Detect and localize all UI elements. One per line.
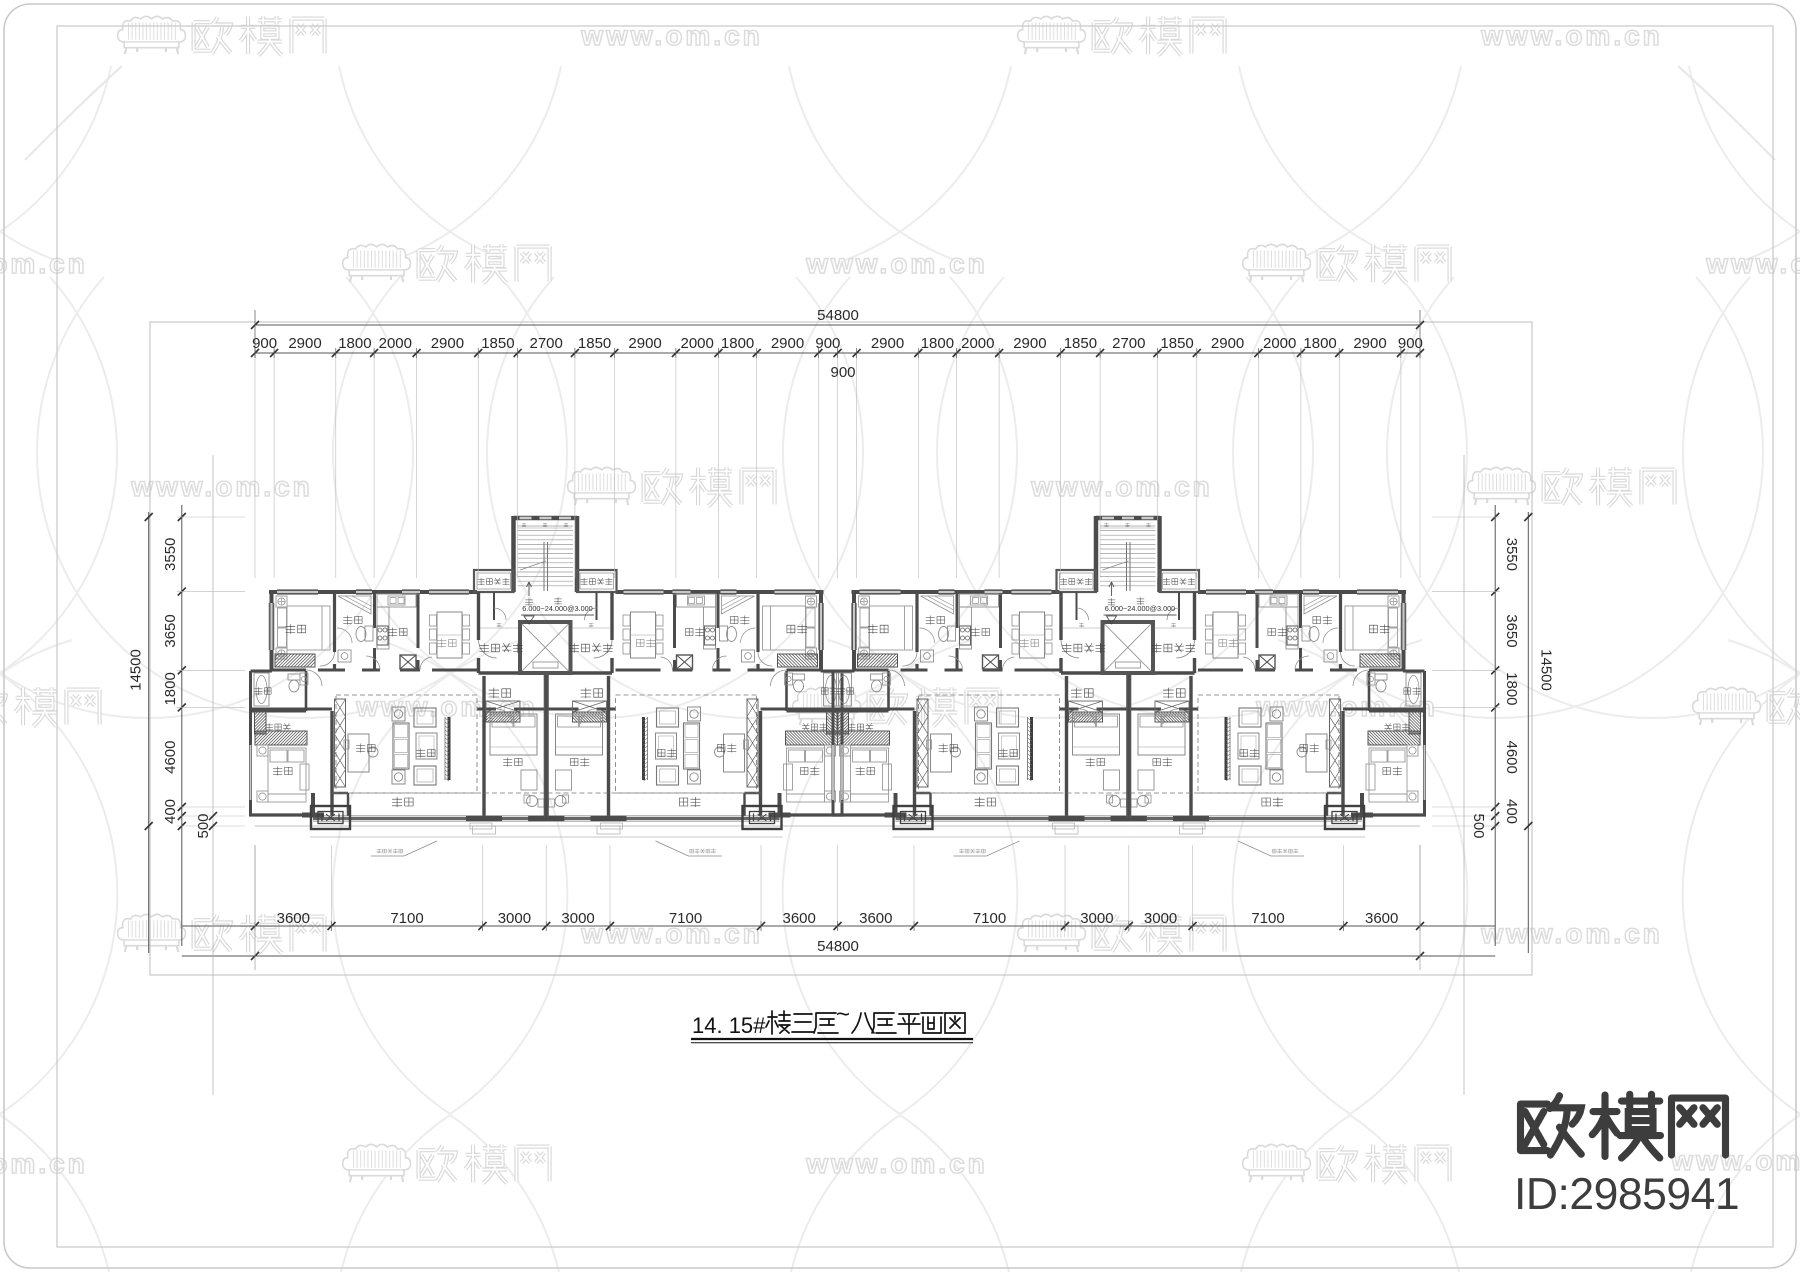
svg-text:3550: 3550 bbox=[1503, 538, 1520, 571]
svg-text:1850: 1850 bbox=[578, 335, 611, 352]
svg-text:1800: 1800 bbox=[1503, 672, 1520, 705]
svg-text:900: 900 bbox=[252, 335, 277, 352]
svg-text:7100: 7100 bbox=[669, 910, 702, 927]
svg-text:1800: 1800 bbox=[721, 335, 754, 352]
svg-text:4600: 4600 bbox=[162, 741, 179, 774]
svg-text:ID:2985941: ID:2985941 bbox=[1514, 1170, 1739, 1219]
svg-text:1800: 1800 bbox=[162, 672, 179, 705]
svg-text:3000: 3000 bbox=[561, 910, 594, 927]
svg-text:3600: 3600 bbox=[859, 910, 892, 927]
svg-text:500: 500 bbox=[1470, 813, 1487, 838]
svg-text:3600: 3600 bbox=[1365, 910, 1398, 927]
svg-text:2000: 2000 bbox=[961, 335, 994, 352]
svg-text:1800: 1800 bbox=[921, 335, 954, 352]
svg-text:7100: 7100 bbox=[390, 910, 423, 927]
svg-text:2900: 2900 bbox=[288, 335, 321, 352]
svg-text:7100: 7100 bbox=[973, 910, 1006, 927]
svg-text:3600: 3600 bbox=[783, 910, 816, 927]
svg-text:3650: 3650 bbox=[1503, 614, 1520, 647]
svg-text:2900: 2900 bbox=[1353, 335, 1386, 352]
svg-text:1800: 1800 bbox=[1303, 335, 1336, 352]
svg-text:400: 400 bbox=[162, 799, 179, 824]
svg-text:2900: 2900 bbox=[871, 335, 904, 352]
svg-text:2000: 2000 bbox=[379, 335, 412, 352]
svg-text:54800: 54800 bbox=[817, 307, 859, 324]
svg-text:2000: 2000 bbox=[1263, 335, 1296, 352]
svg-text:900: 900 bbox=[1398, 335, 1423, 352]
svg-text:900: 900 bbox=[815, 335, 840, 352]
svg-text:14500: 14500 bbox=[1537, 649, 1554, 691]
svg-text:500: 500 bbox=[195, 813, 212, 838]
svg-text:2900: 2900 bbox=[1211, 335, 1244, 352]
svg-text:14. 15#: 14. 15# bbox=[692, 1013, 766, 1038]
svg-text:2900: 2900 bbox=[1013, 335, 1046, 352]
svg-text:7100: 7100 bbox=[1251, 910, 1284, 927]
svg-text:1850: 1850 bbox=[1160, 335, 1193, 352]
svg-text:~: ~ bbox=[836, 1001, 850, 1028]
svg-text:1850: 1850 bbox=[481, 335, 514, 352]
svg-text:3650: 3650 bbox=[162, 614, 179, 647]
svg-text:4600: 4600 bbox=[1503, 741, 1520, 774]
svg-text:2000: 2000 bbox=[681, 335, 714, 352]
svg-text:3600: 3600 bbox=[277, 910, 310, 927]
svg-text:3000: 3000 bbox=[1080, 910, 1113, 927]
svg-text:54800: 54800 bbox=[817, 938, 859, 955]
svg-text:900: 900 bbox=[830, 364, 855, 381]
svg-text:2900: 2900 bbox=[771, 335, 804, 352]
svg-text:3550: 3550 bbox=[162, 538, 179, 571]
svg-text:14500: 14500 bbox=[128, 649, 145, 691]
svg-text:2900: 2900 bbox=[628, 335, 661, 352]
svg-text:2700: 2700 bbox=[530, 335, 563, 352]
svg-text:1800: 1800 bbox=[338, 335, 371, 352]
svg-text:3000: 3000 bbox=[498, 910, 531, 927]
svg-text:2900: 2900 bbox=[431, 335, 464, 352]
svg-text:400: 400 bbox=[1503, 799, 1520, 824]
svg-text:3000: 3000 bbox=[1144, 910, 1177, 927]
svg-text:1850: 1850 bbox=[1064, 335, 1097, 352]
svg-text:2700: 2700 bbox=[1112, 335, 1145, 352]
